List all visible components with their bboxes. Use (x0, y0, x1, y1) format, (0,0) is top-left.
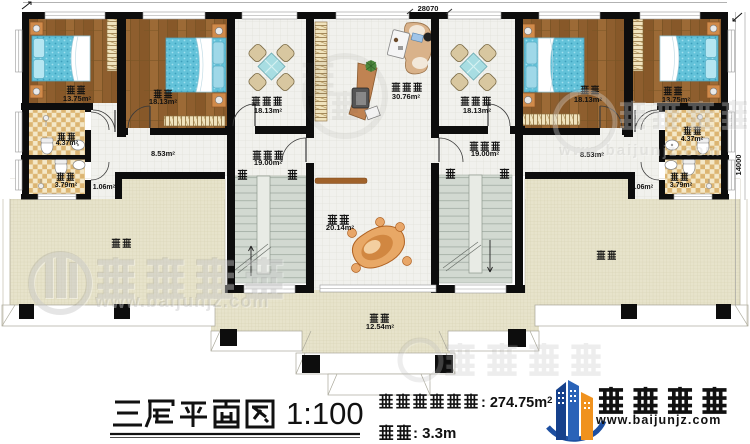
svg-text:13.75m2: 13.75m2 (63, 94, 91, 103)
svg-text:18.13m2: 18.13m2 (463, 106, 491, 115)
svg-text:: 274.75m2: : 274.75m2 (481, 395, 552, 411)
svg-text:30.76m2: 30.76m2 (392, 92, 420, 101)
svg-text:18.13m2: 18.13m2 (149, 97, 177, 106)
svg-text:14000: 14000 (734, 155, 743, 176)
svg-text:1:100: 1:100 (286, 396, 364, 431)
svg-text:4.37m2: 4.37m2 (56, 140, 79, 148)
svg-text:1.06m2: 1.06m2 (631, 184, 654, 192)
svg-text:19.00m2: 19.00m2 (254, 158, 282, 167)
svg-text:3.79m2: 3.79m2 (670, 182, 693, 190)
svg-text:1.06m2: 1.06m2 (93, 184, 116, 192)
svg-text:8.53m2: 8.53m2 (151, 149, 175, 158)
svg-text:www.baijunjz.com: www.baijunjz.com (558, 142, 720, 159)
svg-text:12.54m2: 12.54m2 (366, 322, 394, 331)
svg-text:www.baijunjz.com: www.baijunjz.com (94, 291, 270, 311)
svg-text:3.79m2: 3.79m2 (55, 182, 78, 190)
svg-text:www.baijunjz.com: www.baijunjz.com (595, 413, 721, 427)
svg-text:: 3.3m: : 3.3m (413, 425, 456, 442)
svg-text:18.13m2: 18.13m2 (254, 106, 282, 115)
svg-text:20.14m2: 20.14m2 (326, 223, 354, 232)
svg-text:28070: 28070 (418, 4, 439, 13)
svg-text:19.00m2: 19.00m2 (471, 149, 499, 158)
